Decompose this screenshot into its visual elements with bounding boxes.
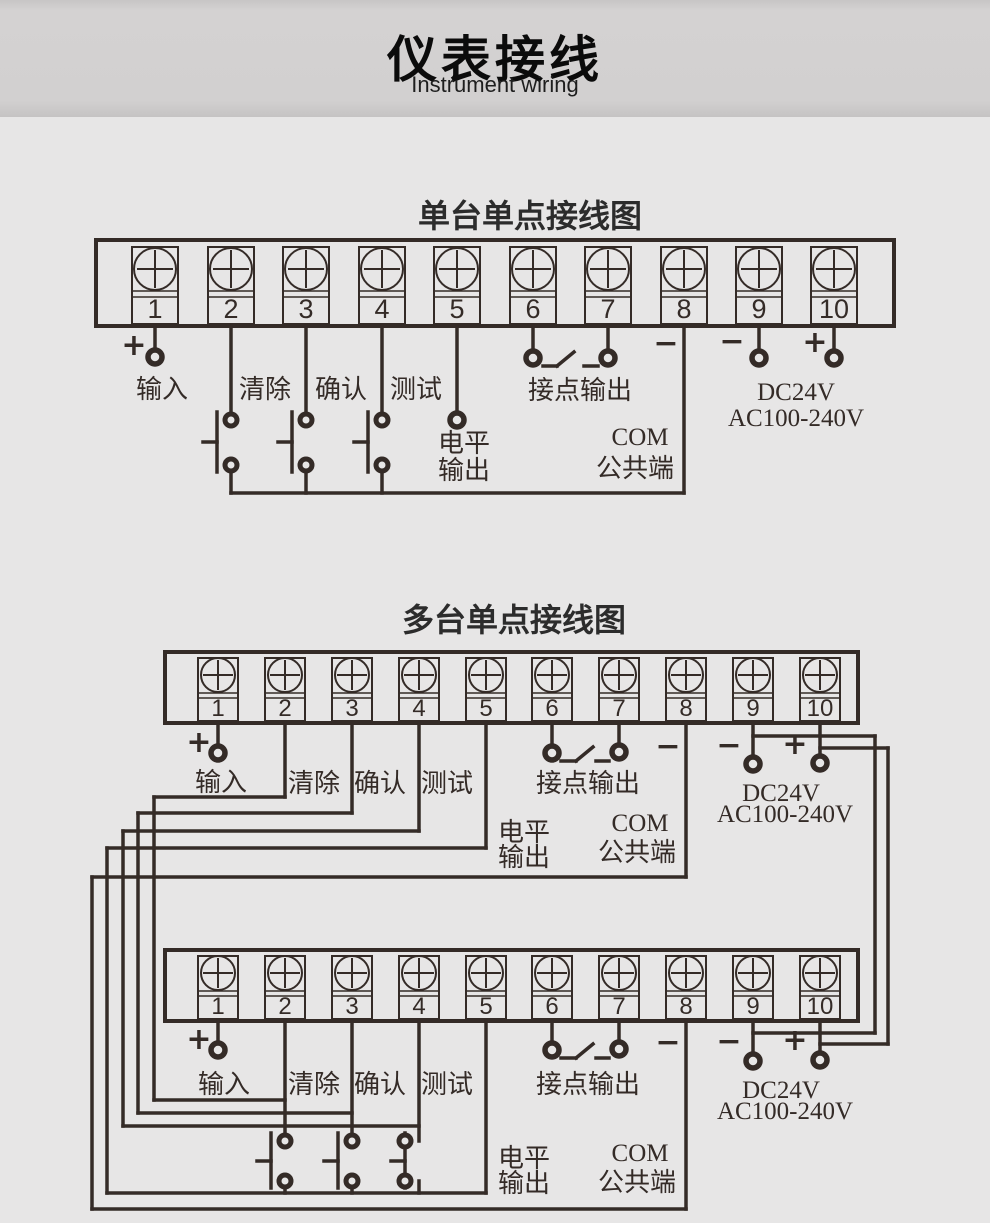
terminal-number: 10: [807, 993, 834, 1020]
polarity-plus: +: [186, 725, 211, 760]
contact-output-ring: [612, 1042, 626, 1056]
button-contact: [376, 459, 388, 471]
terminal-number: 4: [412, 695, 425, 722]
polarity-minus: −: [653, 326, 678, 361]
power-terminal-ring: [827, 351, 841, 365]
terminal-strip: 1 2 3 4 5 6 7 8 9 10: [96, 240, 894, 326]
terminal-number: 5: [449, 294, 464, 324]
contact-output-ring: [601, 351, 615, 365]
terminal-number: 10: [819, 294, 849, 324]
button-contact: [346, 1135, 358, 1147]
terminal-number: 1: [147, 294, 162, 324]
label-clear: 清除: [239, 374, 291, 404]
button-contact: [300, 459, 312, 471]
polarity-minus: −: [655, 1025, 680, 1060]
power-terminal-ring: [813, 1053, 827, 1067]
terminal-number: 9: [746, 993, 759, 1020]
diagram-multi-unit: 多台单点接线图 1 2 3 4 5 6 7: [92, 602, 888, 1209]
terminal-number: 8: [679, 695, 692, 722]
terminal-number: 6: [545, 695, 558, 722]
terminal-number: 5: [479, 993, 492, 1020]
terminal-number: 8: [679, 993, 692, 1020]
button-contact: [225, 459, 237, 471]
label-confirm: 确认: [315, 374, 367, 404]
label-com: COM: [612, 810, 669, 837]
polarity-plus: +: [802, 325, 827, 360]
polarity-plus: +: [782, 727, 807, 762]
polarity-plus: +: [782, 1023, 807, 1058]
contact-output-ring: [545, 1043, 559, 1057]
button-contact: [225, 414, 237, 426]
terminal-number: 2: [278, 993, 291, 1020]
terminal-number: 7: [612, 993, 625, 1020]
terminal-strip-lower: 1 2 3 4 5 6 7 8 9 10: [165, 950, 858, 1021]
label-confirm: 确认: [354, 1069, 406, 1099]
label-com: COM: [612, 424, 669, 451]
contact-output-ring: [612, 745, 626, 759]
terminal-number: 8: [676, 294, 691, 324]
label-common: 公共端: [596, 453, 674, 483]
terminal-number: 3: [345, 695, 358, 722]
power-terminal-ring: [746, 757, 760, 771]
label-test: 测试: [390, 374, 442, 404]
diagram-single-unit: 单台单点接线图 1 2 3 4 5 6 7 8: [96, 198, 894, 493]
instrument-wiring-page: 仪表接线 Instrument wiring 单台单: [0, 0, 990, 1223]
polarity-plus: +: [121, 328, 146, 363]
terminal-number: 2: [278, 695, 291, 722]
label-contact-output: 接点输出: [528, 375, 632, 405]
label-test: 测试: [421, 768, 473, 798]
label-input: 输入: [198, 1069, 250, 1099]
label-common: 公共端: [598, 837, 676, 867]
label-level-2: 输出: [498, 842, 550, 872]
input-terminal-ring: [148, 350, 162, 364]
contact-output-ring: [526, 351, 540, 365]
button-contact: [279, 1175, 291, 1187]
label-common: 公共端: [598, 1167, 676, 1197]
terminal-strip-upper: 1 2 3 4 5 6 7 8 9 10: [165, 652, 858, 723]
terminal-number: 4: [374, 294, 389, 324]
input-terminal-ring: [211, 1043, 225, 1057]
label-contact-output: 接点输出: [536, 1069, 640, 1099]
terminal-number: 6: [525, 294, 540, 324]
polarity-minus: −: [719, 324, 744, 359]
polarity-minus: −: [716, 1024, 741, 1059]
level-output-ring: [450, 413, 464, 427]
terminal-number: 10: [807, 695, 834, 722]
power-terminal-ring: [746, 1054, 760, 1068]
terminal-number: 3: [345, 993, 358, 1020]
input-terminal-ring: [211, 746, 225, 760]
terminal-number: 3: [298, 294, 313, 324]
label-level-2: 输出: [438, 455, 490, 485]
polarity-minus: −: [655, 729, 680, 764]
label-dc-voltage: DC24V: [757, 379, 835, 406]
label-confirm: 确认: [354, 768, 406, 798]
terminal-number: 4: [412, 993, 425, 1020]
label-input: 输入: [195, 767, 247, 797]
terminal-number: 9: [751, 294, 766, 324]
button-contact: [376, 414, 388, 426]
terminal-number: 1: [211, 993, 224, 1020]
power-terminal-ring: [813, 756, 827, 770]
label-input: 输入: [136, 374, 188, 404]
terminal-number: 7: [612, 695, 625, 722]
label-ac-voltage: AC100-240V: [728, 405, 864, 432]
terminal-number: 2: [223, 294, 238, 324]
label-level-1: 电平: [438, 428, 490, 458]
terminal-number: 9: [746, 695, 759, 722]
terminal-number: 1: [211, 695, 224, 722]
label-clear: 清除: [288, 1069, 340, 1099]
label-contact-output: 接点输出: [536, 768, 640, 798]
contact-output-ring: [545, 746, 559, 760]
terminal-number: 5: [479, 695, 492, 722]
wiring-diagram-canvas: 单台单点接线图 1 2 3 4 5 6 7 8: [0, 0, 990, 1223]
button-contact: [279, 1135, 291, 1147]
diagram-title: 多台单点接线图: [402, 602, 626, 638]
label-level-2: 输出: [498, 1168, 550, 1198]
button-contact: [399, 1135, 411, 1147]
terminal-number: 6: [545, 993, 558, 1020]
diagram-title: 单台单点接线图: [418, 198, 642, 234]
terminal-number: 7: [600, 294, 615, 324]
power-terminal-ring: [752, 351, 766, 365]
polarity-minus: −: [716, 728, 741, 763]
label-ac-voltage: AC100-240V: [717, 1098, 853, 1125]
label-com: COM: [612, 1140, 669, 1167]
button-contact: [346, 1175, 358, 1187]
button-contact: [399, 1175, 411, 1187]
button-contact: [300, 414, 312, 426]
label-clear: 清除: [288, 768, 340, 798]
label-ac-voltage: AC100-240V: [717, 801, 853, 828]
label-test: 测试: [421, 1069, 473, 1099]
polarity-plus: +: [186, 1022, 211, 1057]
